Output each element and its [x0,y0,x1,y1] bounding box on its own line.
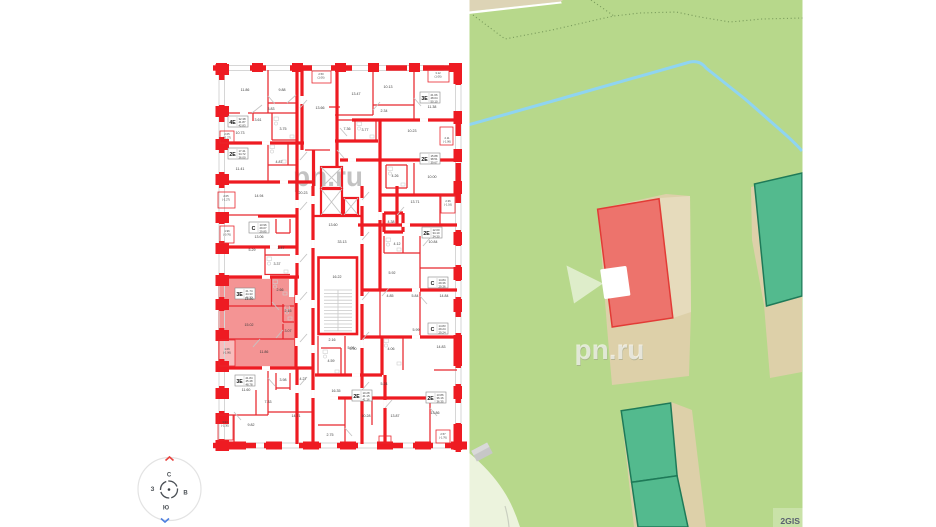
svg-text:5.99: 5.99 [413,328,420,332]
svg-text:3Е: 3Е [236,379,243,385]
svg-text:3.12: 3.12 [435,71,441,75]
svg-text:29.36: 29.36 [439,284,446,288]
svg-text:2Е: 2Е [427,396,434,402]
svg-text:С: С [431,281,435,287]
svg-text:2.15: 2.15 [285,309,292,313]
svg-text:В: В [183,491,188,497]
svg-text:7.36: 7.36 [344,127,351,131]
svg-text:14.84: 14.84 [440,294,449,298]
svg-text:13.87: 13.87 [391,414,400,418]
svg-text:3.61: 3.61 [255,118,262,122]
svg-text:11.86: 11.86 [241,88,250,92]
svg-text:2.50: 2.50 [318,72,324,76]
svg-text:10.28: 10.28 [362,414,371,418]
svg-text:4.26: 4.26 [392,174,399,178]
svg-text:2.36: 2.36 [445,199,451,203]
svg-text:2.34: 2.34 [381,109,388,113]
svg-text:2.75: 2.75 [327,433,334,437]
svg-text:4.12: 4.12 [394,242,401,246]
svg-text:3.83: 3.83 [268,107,275,111]
svg-text:5.29: 5.29 [249,248,256,252]
svg-text:С: С [167,473,172,479]
svg-text:15.02: 15.02 [245,323,254,327]
svg-text:10.73: 10.73 [236,131,245,135]
svg-text:3.75: 3.75 [280,127,287,131]
svg-text:5.24: 5.24 [381,382,388,386]
svg-text:1.96: 1.96 [224,229,230,233]
svg-text:11.41: 11.41 [236,167,245,171]
svg-text:36.00: 36.00 [239,155,246,159]
svg-text:3.77: 3.77 [362,128,369,132]
svg-text:2Е: 2Е [421,157,428,163]
svg-text:48.78: 48.78 [246,382,253,386]
svg-text:9.88: 9.88 [279,88,286,92]
svg-text:16.35: 16.35 [332,389,341,393]
svg-text:2Е: 2Е [229,152,236,158]
svg-text:(1.06): (1.06) [434,75,441,79]
svg-text:2.11: 2.11 [444,136,450,140]
svg-text:3.07: 3.07 [285,329,292,333]
svg-text:13.47: 13.47 [352,92,361,96]
svg-text:14.83: 14.83 [437,345,446,349]
svg-text:2.66: 2.66 [277,288,284,292]
svg-text:50.10: 50.10 [431,99,438,103]
svg-text:13.60: 13.60 [329,223,338,227]
svg-text:(-1.30): (-1.30) [221,424,229,428]
svg-text:4Е: 4Е [229,120,236,126]
svg-text:2GIS: 2GIS [780,516,800,526]
svg-text:39.67: 39.67 [431,160,438,164]
svg-text:3.47: 3.47 [278,246,285,250]
svg-text:4.27: 4.27 [300,377,307,381]
svg-text:10.23: 10.23 [408,129,417,133]
svg-text:Ю: Ю [163,506,169,512]
svg-text:С: С [431,327,435,333]
svg-text:20.23: 20.23 [299,191,308,195]
svg-text:3.98: 3.98 [280,378,287,382]
svg-text:(-1.27): (-1.27) [222,198,230,202]
svg-text:(1.06): (1.06) [317,76,324,80]
svg-text:34.30: 34.30 [433,234,440,238]
svg-text:42.83: 42.83 [239,123,246,127]
svg-text:9.82: 9.82 [248,423,255,427]
svg-text:14.94: 14.94 [255,194,264,198]
svg-text:7.33: 7.33 [265,400,272,404]
svg-text:1.06: 1.06 [224,347,230,351]
svg-text:2Е: 2Е [423,231,430,237]
svg-text:11.38: 11.38 [428,105,437,109]
svg-text:4.85: 4.85 [387,294,394,298]
svg-text:29.85: 29.85 [260,229,267,233]
svg-text:pn.ru: pn.ru [575,334,645,365]
svg-text:(-1.76): (-1.76) [439,436,447,440]
svg-text:41.16: 41.16 [363,397,370,401]
svg-text:(-0.76): (-0.76) [223,233,231,237]
svg-text:4.87: 4.87 [276,160,283,164]
svg-text:10.84: 10.84 [429,240,438,244]
svg-text:13.66: 13.66 [316,106,325,110]
svg-text:(-1.06): (-1.06) [443,140,451,144]
svg-text:5.92: 5.92 [389,271,396,275]
svg-text:(-1.16): (-1.16) [444,203,452,207]
svg-text:2.05: 2.05 [223,194,229,198]
svg-text:2.16: 2.16 [329,338,336,342]
svg-text:13.71: 13.71 [411,200,420,204]
svg-text:16.22: 16.22 [333,275,342,279]
svg-text:11.86: 11.86 [260,350,269,354]
svg-text:2.57: 2.57 [440,432,446,436]
svg-text:3.37: 3.37 [274,262,281,266]
svg-text:10.00: 10.00 [428,175,437,179]
svg-text:33.13: 33.13 [338,240,347,244]
svg-text:2.05: 2.05 [224,132,230,136]
svg-text:11.60: 11.60 [242,388,251,392]
svg-text:С: С [252,226,256,232]
svg-text:5.96: 5.96 [348,346,355,350]
svg-text:З: З [151,487,155,493]
svg-text:29.24: 29.24 [439,330,446,334]
svg-text:(-1.27): (-1.27) [223,136,231,140]
svg-text:14.71: 14.71 [292,414,301,418]
svg-text:13.86: 13.86 [431,411,440,415]
svg-text:4.59: 4.59 [328,359,335,363]
svg-text:13.06: 13.06 [255,235,264,239]
svg-text:4.38: 4.38 [388,220,395,224]
svg-text:2Е: 2Е [353,394,360,400]
svg-text:36.35: 36.35 [437,399,444,403]
svg-text:5.84: 5.84 [412,294,419,298]
svg-text:3Е: 3Е [236,292,243,298]
svg-text:(-1.06): (-1.06) [223,351,231,355]
svg-text:3Е: 3Е [421,96,428,102]
svg-text:11.20: 11.20 [245,297,254,301]
svg-text:10.13: 10.13 [384,85,393,89]
svg-text:4.06: 4.06 [388,347,395,351]
svg-text:3.94: 3.94 [222,420,228,424]
